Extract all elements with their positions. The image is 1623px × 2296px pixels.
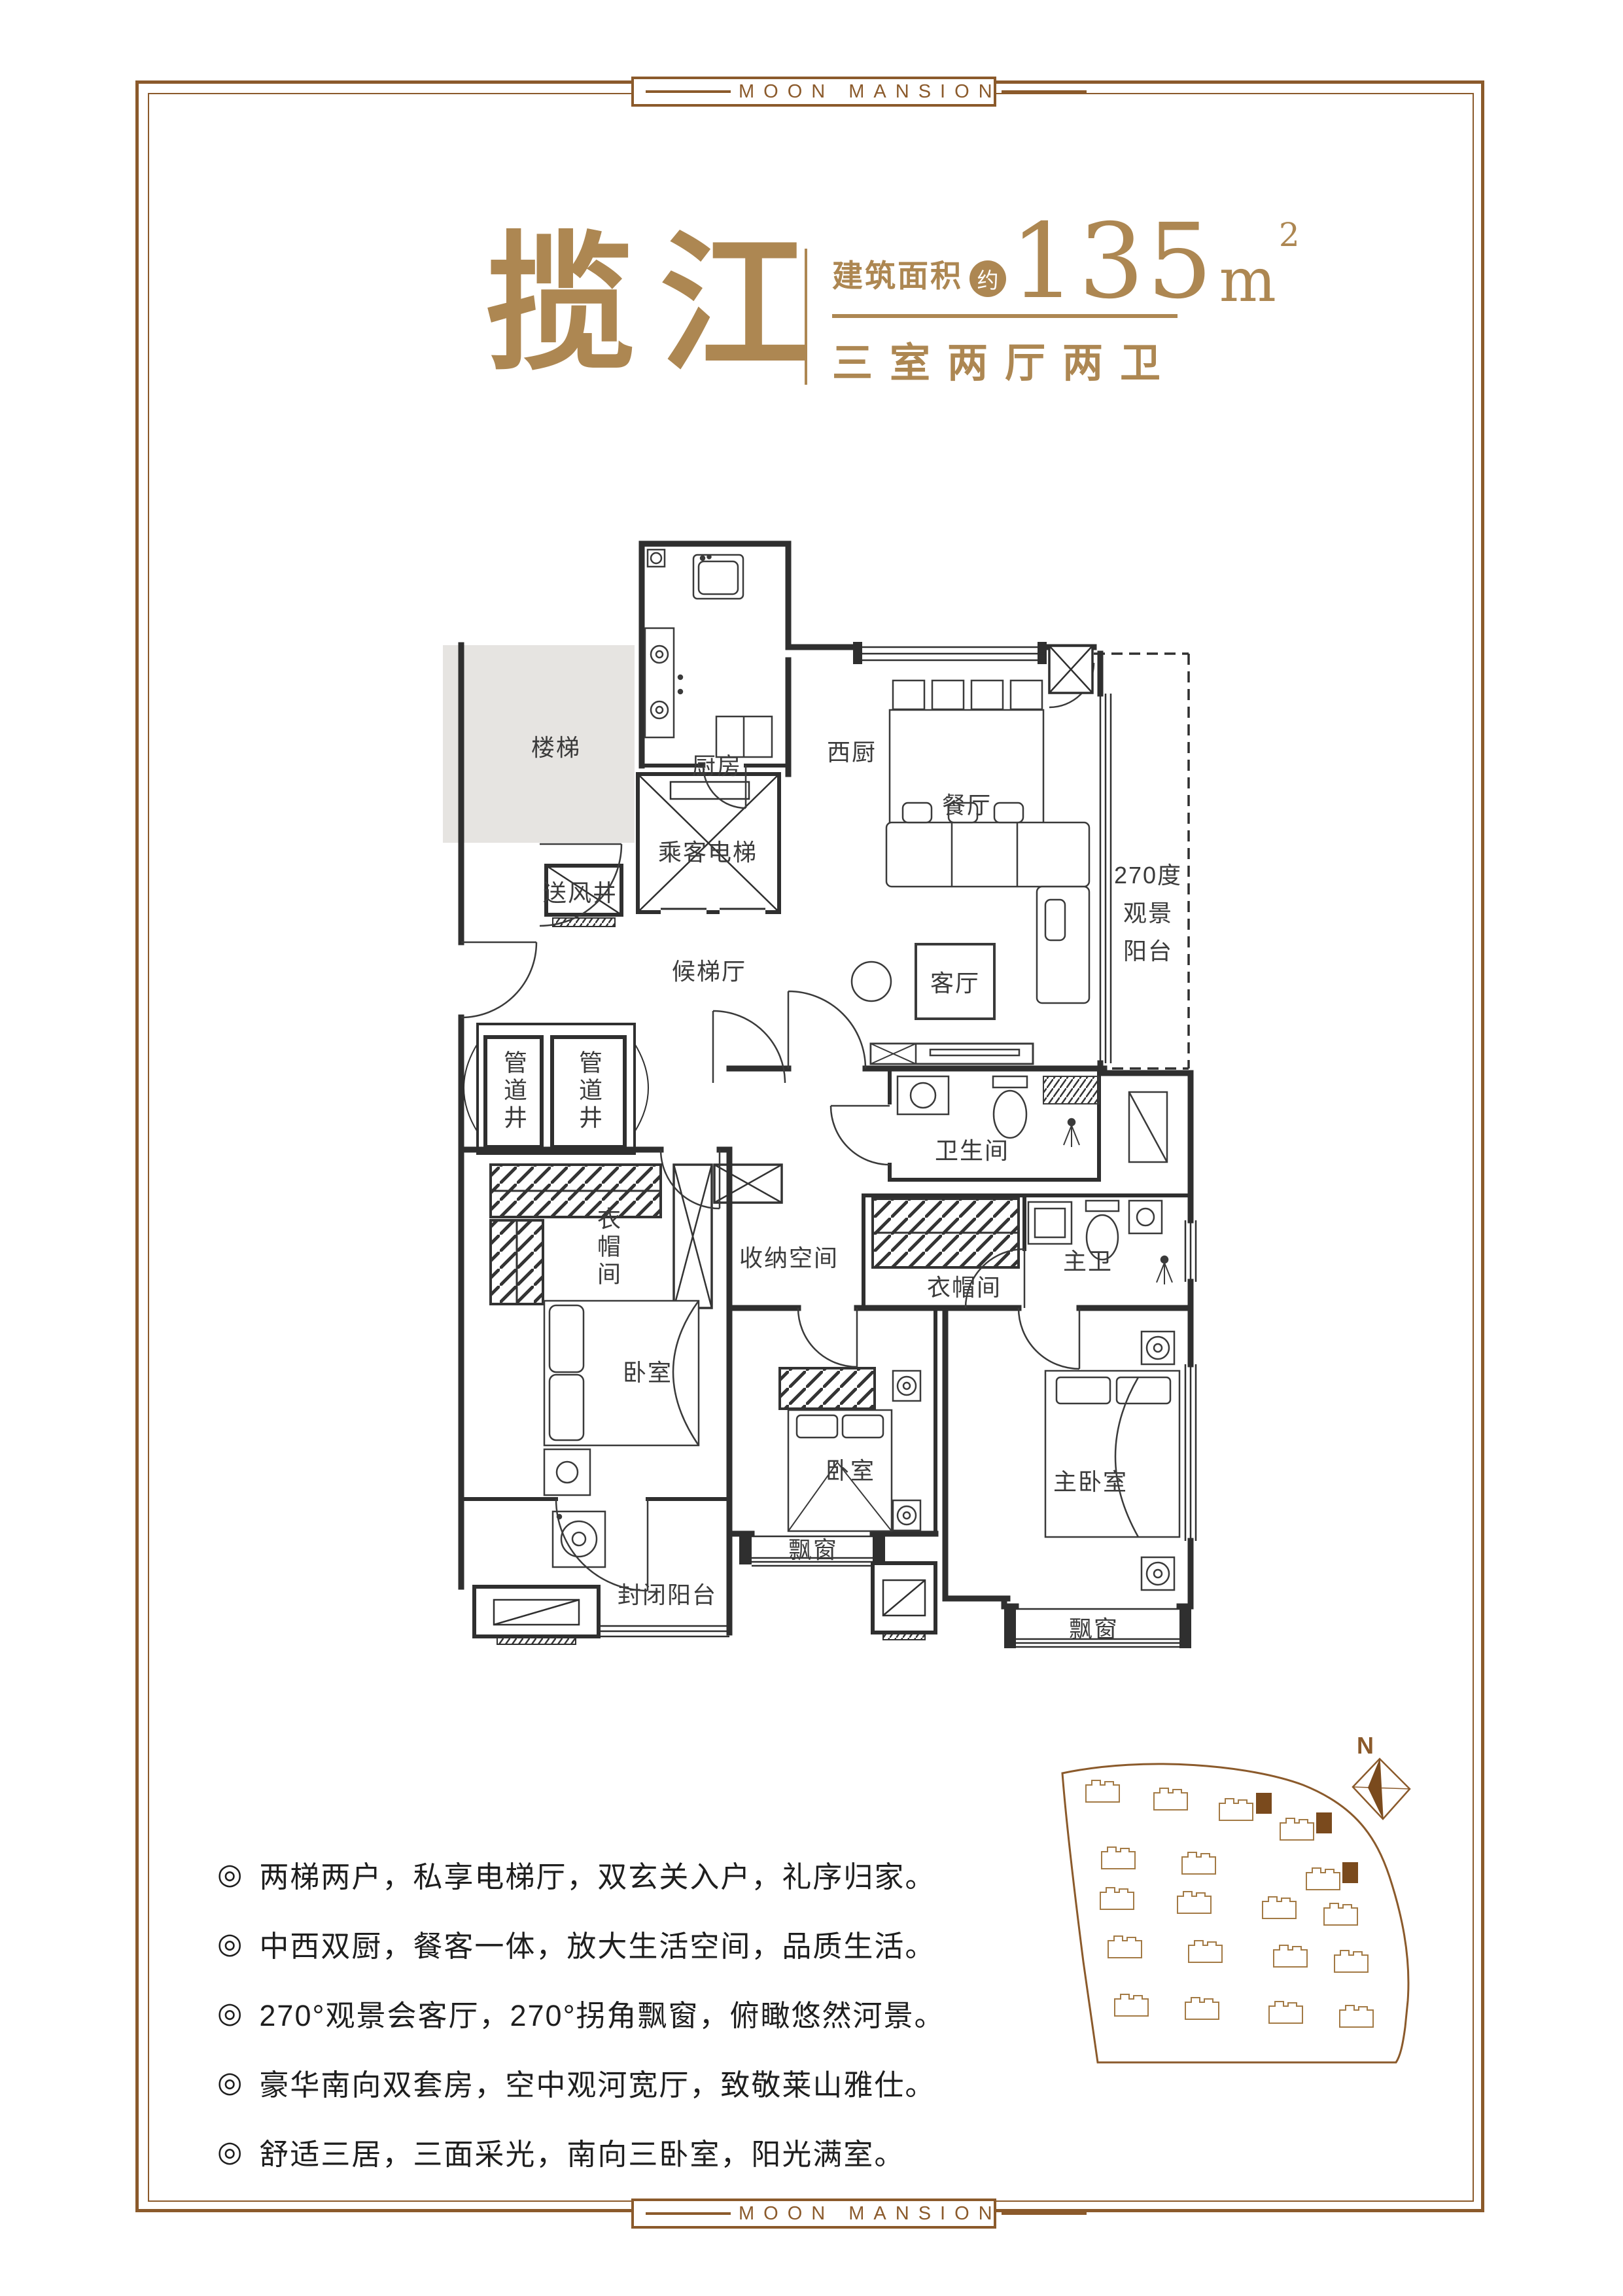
room-label-storage: 收纳空间 [739, 1239, 839, 1273]
room-label-cloakroom-right: 衣帽间 [927, 1269, 1002, 1303]
column-x [1049, 646, 1092, 693]
bullet-icon: ◎ [217, 1927, 242, 1960]
room-label-kitchen: 厨房 [692, 747, 742, 781]
feature-item: ◎ 两梯两户，私享电梯厅，双玄关入户，礼序归家。 [217, 1853, 945, 1896]
feature-text: 两梯两户，私享电梯厅，双玄关入户，礼序归家。 [259, 1853, 935, 1896]
area-circa-seal: 约 [969, 260, 1006, 297]
area-exponent: 2 [1279, 216, 1300, 254]
badge-rule-right [1002, 90, 1087, 93]
title-info: 建筑面积 约 135 m 2 三室两厅两卫 [832, 220, 1198, 389]
room-label-balcony270-2: 观景 [1123, 894, 1173, 928]
room-label-elevator: 乘客电梯 [658, 834, 758, 868]
room-label-bay-window-right: 飘窗 [1069, 1610, 1119, 1644]
compass-north-label: N [1357, 1732, 1374, 1759]
room-label-master-bedroom: 主卧室 [1053, 1463, 1128, 1497]
master-bedroom-furniture [1045, 1332, 1179, 1590]
room-label-cloakroom-left: 衣帽间 [590, 1207, 624, 1289]
feature-item: ◎ 豪华南向双套房，空中观河宽厅，致敬莱山雅仕。 [217, 2061, 945, 2104]
site-plan: N [1055, 1720, 1512, 2125]
room-label-bay-window-middle: 飘窗 [788, 1531, 838, 1565]
feature-text: 中西双厨，餐客一体，放大生活空间，品质生活。 [259, 1922, 935, 1965]
feature-item: ◎ 270°观景会客厅，270°拐角飘窗，俯瞰悠然河景。 [217, 1992, 945, 2034]
area-label: 建筑面积 [832, 251, 963, 296]
room-label-west-kitchen: 西厨 [827, 733, 877, 768]
area-row: 建筑面积 约 135 m 2 [832, 220, 1198, 305]
room-label-bedroom-left: 卧室 [623, 1354, 672, 1388]
feature-text: 豪华南向双套房，空中观河宽厅，致敬莱山雅仕。 [259, 2061, 935, 2104]
room-label-balcony270-3: 阳台 [1123, 932, 1173, 966]
bullet-icon: ◎ [217, 2135, 242, 2168]
bullet-icon: ◎ [217, 1858, 242, 1891]
floorplan: 楼梯 厨房 西厨 餐厅 客厅 270度 观景 阳台 乘客电梯 送风井 候梯厅 管… [432, 520, 1263, 1649]
room-label-living: 客厅 [930, 964, 980, 998]
room-label-elevator-hall: 候梯厅 [672, 953, 746, 987]
bedroom-left-furniture [544, 1301, 699, 1495]
room-label-balcony270-1: 270度 [1114, 857, 1182, 891]
site-plan-drawing: N [1055, 1720, 1512, 2125]
bullet-icon: ◎ [217, 1996, 242, 2030]
closet-window [1129, 1092, 1167, 1162]
layout-text: 三室两厅两卫 [832, 330, 1198, 389]
kitchen-fixtures [645, 550, 772, 757]
room-label-bedroom-middle: 卧室 [826, 1452, 875, 1486]
brand-badge-text: MOON MANSION [731, 2203, 1002, 2225]
brand-badge-bottom: MOON MANSION [631, 2199, 996, 2229]
badge-rule-left [646, 90, 731, 93]
feature-item: ◎ 舒适三居，三面采光，南向三卧室，阳光满室。 [217, 2130, 945, 2173]
brand-badge-text: MOON MANSION [731, 81, 1002, 103]
compass-icon: N [1353, 1732, 1410, 1819]
plan-title-calligraphy: 揽江 [485, 228, 833, 380]
badge-rule-left [646, 2212, 731, 2215]
area-value: 135 [1010, 220, 1215, 305]
area-unit: m [1219, 256, 1276, 305]
feature-item: ◎ 中西双厨，餐客一体，放大生活空间，品质生活。 [217, 1922, 945, 1965]
bullet-icon: ◎ [217, 2066, 242, 2099]
feature-text: 舒适三居，三面采光，南向三卧室，阳光满室。 [259, 2130, 905, 2173]
title-divider [805, 249, 807, 385]
room-label-enclosed-balcony: 封闭阳台 [618, 1576, 717, 1610]
feature-list: ◎ 两梯两户，私享电梯厅，双玄关入户，礼序归家。 ◎ 中西双厨，餐客一体，放大生… [217, 1853, 945, 2200]
room-label-pipe-shaft-1: 管道井 [497, 1050, 531, 1133]
pipe-shafts [464, 1024, 648, 1154]
room-label-stairs: 楼梯 [531, 729, 581, 763]
room-label-master-bath: 主卫 [1063, 1243, 1113, 1277]
living-set [852, 803, 1089, 1064]
room-label-dining: 餐厅 [942, 786, 992, 821]
room-label-pipe-shaft-2: 管道井 [572, 1050, 606, 1133]
room-label-bathroom: 卫生间 [935, 1132, 1009, 1166]
floorplan-poster: MOON MANSION MOON MANSION 揽江 建筑面积 约 135 … [0, 0, 1623, 2296]
room-label-air-shaft: 送风井 [543, 874, 618, 908]
badge-rule-right [1002, 2212, 1087, 2215]
feature-text: 270°观景会客厅，270°拐角飘窗，俯瞰悠然河景。 [259, 1992, 945, 2034]
brand-badge-top: MOON MANSION [631, 77, 996, 107]
